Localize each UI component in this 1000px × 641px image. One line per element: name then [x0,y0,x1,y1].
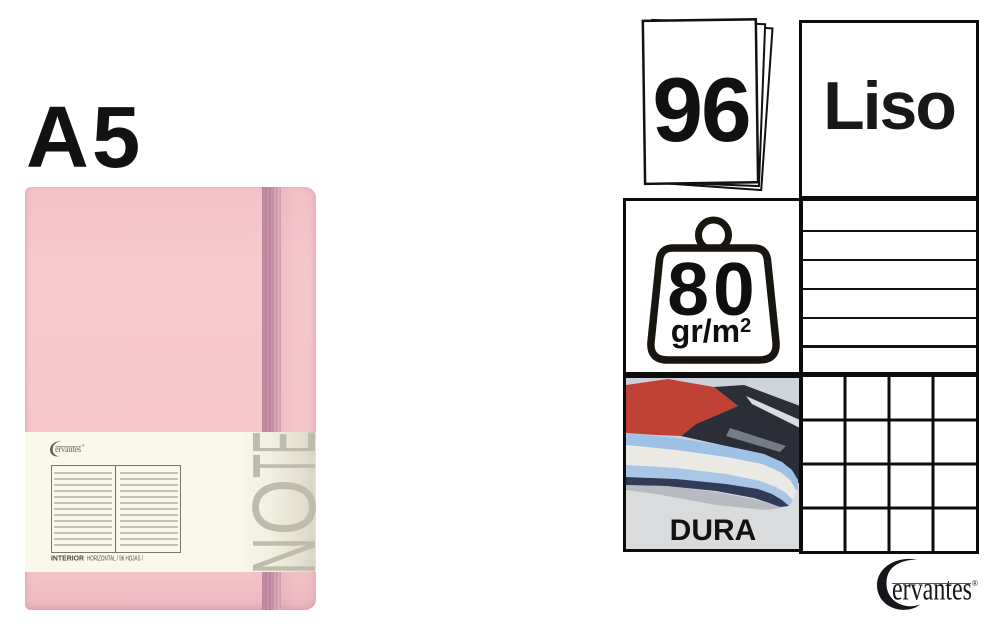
svg-text:E: E [247,431,316,454]
svg-text:O: O [247,479,316,536]
svg-text:DURA: DURA [670,514,757,547]
svg-text:gr/m2: gr/m2 [671,313,751,349]
svg-text:96: 96 [652,60,749,161]
svg-text:ervantes: ervantes [892,572,972,608]
svg-text:INTERIOR: INTERIOR [51,556,84,563]
svg-text:HORIZONTAL / 96 HOJAS /: HORIZONTAL / 96 HOJAS / [87,556,143,563]
svg-text:®: ® [972,579,978,588]
svg-text:®: ® [82,444,85,448]
svg-text:N: N [247,537,316,575]
svg-text:T: T [247,454,316,478]
